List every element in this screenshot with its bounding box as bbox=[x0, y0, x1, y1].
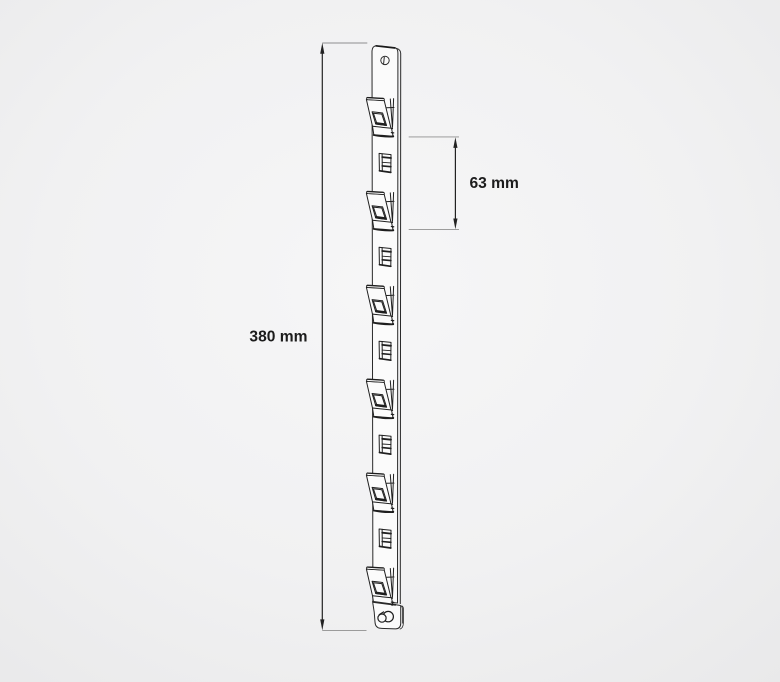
svg-text:380 mm: 380 mm bbox=[249, 329, 307, 346]
svg-text:63 mm: 63 mm bbox=[470, 175, 519, 192]
